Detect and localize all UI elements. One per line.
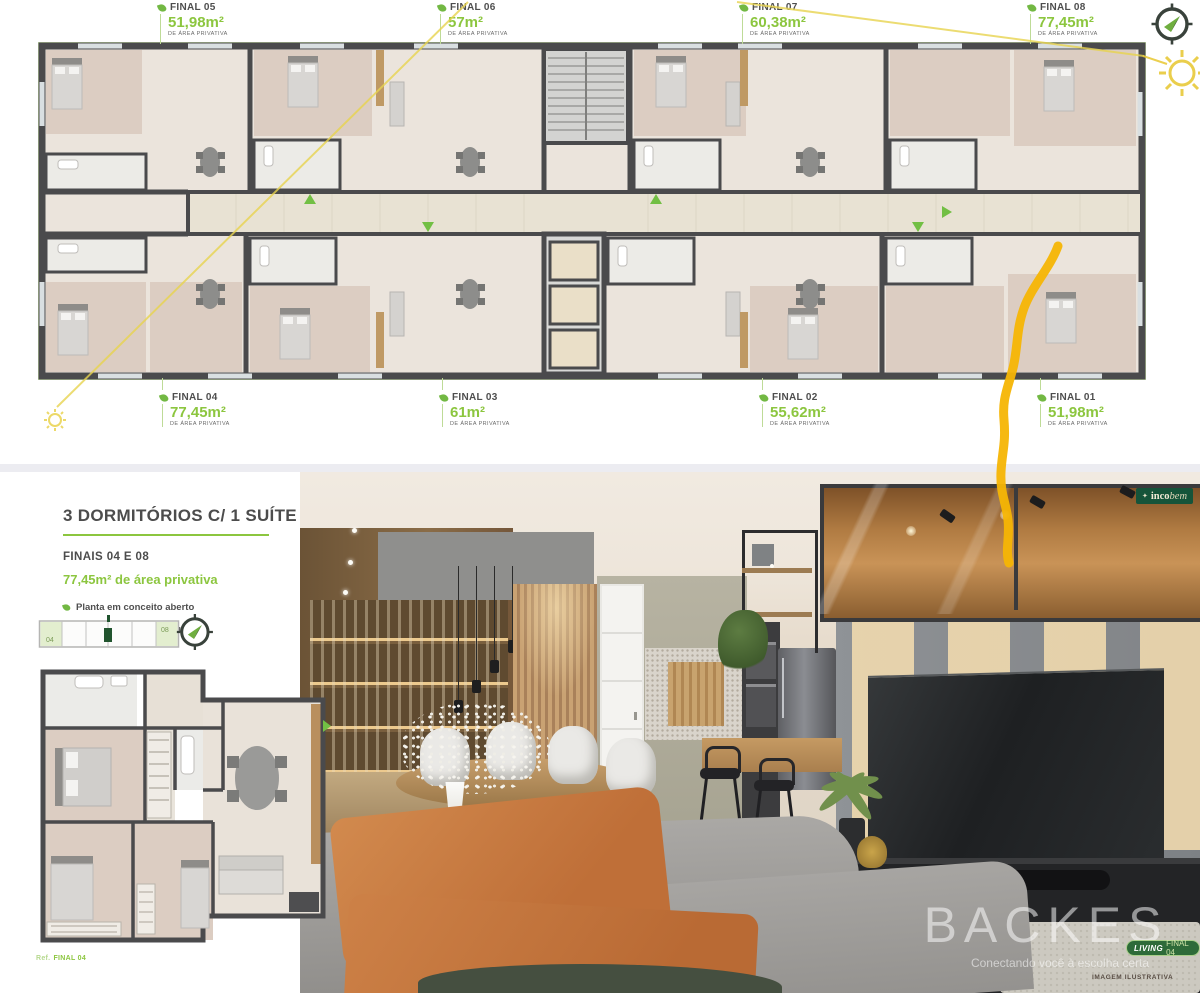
compass-icon: [1146, 0, 1196, 48]
area-caption: DE ÁREA PRIVATIVA: [1048, 421, 1108, 427]
pendant-light: [458, 566, 459, 702]
oven: [746, 684, 776, 727]
unit-label-final-05: FINAL 05 51,98m²DE ÁREA PRIVATIVA: [158, 2, 228, 44]
sun-doodle-small: [44, 409, 66, 431]
panel-subtitle: FINAIS 04 E 08: [63, 551, 149, 563]
area-caption: DE ÁREA PRIVATIVA: [450, 421, 510, 427]
unit-area: 77,45m²: [1038, 14, 1098, 31]
title-underline: [63, 534, 269, 536]
unit-name: FINAL 01: [1050, 392, 1096, 403]
leaf-icon: [157, 2, 167, 12]
area-caption: DE ÁREA PRIVATIVA: [170, 421, 230, 427]
leaf-icon: [159, 392, 169, 402]
ceiling-spot: [352, 528, 357, 533]
unit-area: 51,98m²: [168, 14, 228, 31]
area-caption: DE ÁREA PRIVATIVA: [770, 421, 830, 427]
suite-bed: [55, 748, 111, 806]
bed-2: [51, 856, 93, 920]
leaf-icon: [1037, 392, 1047, 402]
niche-wood-panel: [668, 662, 724, 726]
flower-arrangement: [400, 702, 550, 794]
unit-label-final-07: FINAL 07 60,38m²DE ÁREA PRIVATIVA: [740, 2, 810, 44]
brand-name: inco: [1151, 491, 1170, 502]
bed-3: [181, 860, 209, 928]
leaf-icon: [739, 2, 749, 12]
unit-floorplan: [35, 660, 359, 958]
ceiling-spot: [348, 560, 353, 565]
unit-area: 60,38m²: [750, 14, 810, 31]
unit-label-final-04: FINAL 04 77,45m²DE ÁREA PRIVATIVA: [160, 378, 230, 427]
unit-name: FINAL 02: [772, 392, 818, 403]
leaf-icon: [62, 603, 71, 612]
leaf-icon: [759, 392, 769, 402]
panel-area-line: 77,45m² de área privativa: [63, 572, 218, 587]
unit-name: FINAL 07: [752, 2, 798, 13]
leaf-icon: [439, 392, 449, 402]
ceiling-spot: [343, 590, 348, 595]
area-caption: DE ÁREA PRIVATIVA: [448, 31, 508, 37]
pendant-light: [494, 566, 495, 662]
unit-area: 77,45m²: [170, 404, 230, 421]
watermark-tagline: Conectando você à escolha certa: [930, 956, 1190, 970]
corridor: [188, 192, 1140, 234]
unit-area: 61m²: [450, 404, 510, 421]
unit-label-final-06: FINAL 06 57m²DE ÁREA PRIVATIVA: [438, 2, 508, 44]
leaf-icon: [1027, 2, 1037, 12]
stairwell: [544, 49, 628, 143]
floor-locator: 04 08: [38, 612, 180, 656]
area-caption: DE ÁREA PRIVATIVA: [750, 31, 810, 37]
building-floorplan: [38, 42, 1146, 380]
unit-label-final-02: FINAL 02 55,62m²DE ÁREA PRIVATIVA: [760, 378, 830, 427]
living-badge: LIVINGFINAL 04: [1126, 940, 1200, 956]
elevator-bank: [544, 234, 604, 374]
storage-box: [752, 544, 774, 566]
pendant-light: [476, 566, 477, 682]
plan-reference: Ref.FINAL 04: [36, 955, 86, 962]
brochure-page: FINAL 05 51,98m²DE ÁREA PRIVATIVA FINAL …: [0, 0, 1200, 993]
leaf-icon: [437, 2, 447, 12]
image-disclaimer: IMAGEM ILUSTRATIVA: [1092, 974, 1173, 981]
builder-brand-badge: ✦incobem: [1136, 488, 1193, 504]
tree-icon: ✦: [1142, 492, 1148, 500]
panel-title: 3 DORMITÓRIOS C/ 1 SUÍTE: [63, 506, 297, 526]
unit-name: FINAL 06: [450, 2, 496, 13]
unit-area: 51,98m²: [1048, 404, 1108, 421]
area-caption: DE ÁREA PRIVATIVA: [168, 31, 228, 37]
compass-icon: [172, 608, 216, 656]
unit-label-final-01: FINAL 01 51,98m²DE ÁREA PRIVATIVA: [1038, 378, 1108, 427]
unit-name: FINAL 03: [452, 392, 498, 403]
unit-label-final-08: FINAL 08 77,45m²DE ÁREA PRIVATIVA: [1028, 2, 1098, 44]
locator-unit-08: 08: [161, 627, 169, 634]
unit-area: 57m²: [448, 14, 508, 31]
unit-area: 55,62m²: [770, 404, 830, 421]
unit-label-final-03: FINAL 03 61m²DE ÁREA PRIVATIVA: [440, 378, 510, 427]
dining-chair: [548, 726, 598, 784]
section-divider: [0, 464, 1200, 472]
locator-unit-04: 04: [46, 637, 54, 644]
ceiling-spot: [770, 564, 774, 568]
interior-render: ✦incobem BACKES Conectando você à escolh…: [300, 472, 1200, 993]
sofa: [219, 856, 283, 894]
unit-name: FINAL 04: [172, 392, 218, 403]
area-caption: DE ÁREA PRIVATIVA: [1038, 31, 1098, 37]
door-handle: [634, 712, 637, 720]
sun-doodle: [1159, 50, 1200, 96]
unit-name: FINAL 08: [1040, 2, 1086, 13]
unit-name: FINAL 05: [170, 2, 216, 13]
